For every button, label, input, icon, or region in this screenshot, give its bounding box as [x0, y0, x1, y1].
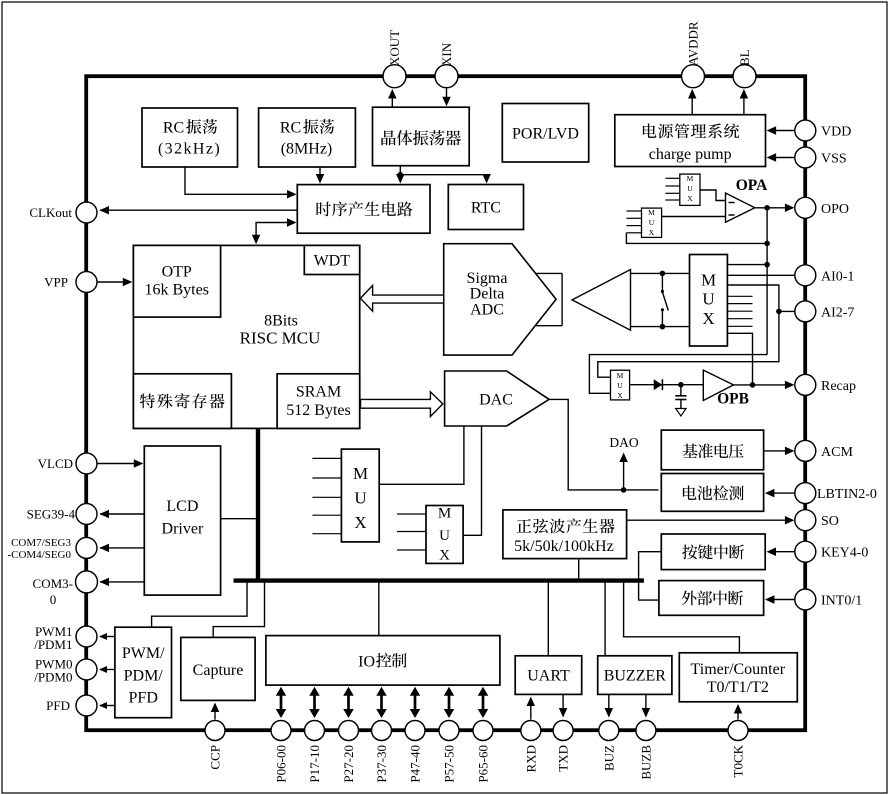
svg-text:DAC: DAC — [479, 392, 513, 409]
svg-text:VLCD: VLCD — [38, 456, 73, 471]
svg-text:KEY4-0: KEY4-0 — [821, 546, 868, 561]
svg-text:charge pump: charge pump — [649, 146, 732, 163]
svg-text:PFD: PFD — [129, 690, 158, 707]
svg-text:U: U — [687, 184, 693, 193]
svg-text:SRAM: SRAM — [296, 384, 341, 401]
svg-text:WDT: WDT — [314, 253, 351, 270]
svg-text:BUZZER: BUZZER — [604, 668, 667, 685]
svg-text:BUZ: BUZ — [601, 745, 616, 771]
svg-text:U: U — [617, 381, 623, 390]
svg-text:P65-60: P65-60 — [476, 745, 491, 783]
svg-text:0: 0 — [50, 592, 57, 607]
svg-text:LCD: LCD — [166, 498, 198, 515]
svg-text:CLKout: CLKout — [29, 205, 72, 220]
svg-text:OTP: OTP — [162, 264, 192, 281]
svg-text:M: M — [701, 271, 716, 290]
svg-text:PWM/: PWM/ — [122, 645, 165, 662]
svg-text:UART: UART — [527, 668, 570, 685]
svg-text:ACM: ACM — [821, 445, 853, 460]
svg-text:OPO: OPO — [821, 202, 849, 217]
svg-text:COM7/SEG3: COM7/SEG3 — [11, 537, 71, 549]
svg-text:LBTIN2-0: LBTIN2-0 — [817, 487, 877, 502]
svg-text:X: X — [617, 391, 623, 400]
svg-text:512 Bytes: 512 Bytes — [286, 402, 350, 419]
svg-text:COM3-: COM3- — [33, 576, 73, 591]
svg-text:VPP: VPP — [44, 275, 68, 290]
svg-text:U: U — [702, 290, 714, 309]
svg-text:T0/T1/T2: T0/T1/T2 — [707, 679, 769, 696]
svg-text:CCP: CCP — [208, 745, 223, 770]
svg-text:M: M — [648, 208, 655, 217]
svg-text:M: M — [353, 464, 368, 483]
svg-text:U: U — [649, 218, 655, 227]
svg-text:RC: RC — [280, 120, 301, 137]
svg-text:5k/50k/100kHz: 5k/50k/100kHz — [514, 538, 614, 555]
svg-text:X: X — [439, 548, 450, 564]
svg-text:PFD: PFD — [46, 698, 70, 713]
svg-text:ADC: ADC — [470, 302, 504, 319]
svg-text:(32kHz): (32kHz) — [158, 141, 221, 158]
svg-text:AI0-1: AI0-1 — [821, 269, 854, 284]
svg-text:BL: BL — [737, 49, 752, 66]
svg-text:P27-20: P27-20 — [341, 745, 356, 783]
svg-text:SO: SO — [821, 514, 839, 529]
svg-text:PDM/: PDM/ — [124, 668, 164, 685]
svg-text:/PDM1: /PDM1 — [34, 637, 72, 652]
svg-text:AVDDR: AVDDR — [686, 21, 701, 66]
svg-text:IO: IO — [358, 653, 375, 670]
svg-text:VDD: VDD — [821, 125, 851, 140]
svg-text:INT0/1: INT0/1 — [821, 594, 862, 609]
svg-text:SEG39-4: SEG39-4 — [27, 507, 76, 522]
svg-text:Driver: Driver — [162, 521, 204, 538]
svg-text:P57-50: P57-50 — [442, 745, 457, 783]
svg-text:M: M — [617, 371, 624, 380]
svg-text:POR/LVD: POR/LVD — [512, 125, 579, 142]
svg-text:16k Bytes: 16k Bytes — [144, 282, 208, 299]
svg-text:M: M — [687, 174, 694, 183]
svg-text:BUZB: BUZB — [638, 745, 653, 780]
svg-text:X: X — [649, 228, 655, 237]
svg-text:AI2-7: AI2-7 — [821, 305, 854, 320]
svg-text:X: X — [702, 309, 714, 328]
svg-text:P17-10: P17-10 — [307, 745, 322, 783]
svg-text:DAO: DAO — [609, 435, 638, 450]
svg-text:RISC MCU: RISC MCU — [240, 329, 321, 348]
svg-text:X: X — [354, 513, 366, 532]
svg-text:Capture: Capture — [193, 662, 244, 679]
svg-text:8Bits: 8Bits — [264, 313, 298, 330]
svg-text:P47-40: P47-40 — [408, 745, 423, 783]
svg-text:Timer/Counter: Timer/Counter — [691, 661, 786, 678]
svg-text:(8MHz): (8MHz) — [281, 141, 333, 158]
svg-text:RTC: RTC — [471, 200, 501, 217]
svg-text:P06-00: P06-00 — [274, 745, 289, 783]
svg-text:RC: RC — [163, 120, 184, 137]
svg-text:OPA: OPA — [736, 177, 768, 194]
svg-text:RXD: RXD — [523, 745, 538, 772]
svg-text:Delta: Delta — [470, 286, 505, 303]
svg-text:/PDM0: /PDM0 — [34, 670, 72, 685]
svg-text:-COM4/SEG0: -COM4/SEG0 — [7, 549, 71, 561]
svg-text:P37-30: P37-30 — [374, 745, 389, 783]
svg-text:TXD: TXD — [556, 745, 571, 772]
svg-text:Recap: Recap — [821, 379, 856, 394]
svg-text:M: M — [438, 506, 451, 522]
svg-text:XIN: XIN — [439, 42, 454, 66]
svg-text:OPB: OPB — [717, 391, 749, 408]
svg-text:XOUT: XOUT — [387, 30, 402, 66]
svg-text:U: U — [439, 528, 450, 544]
svg-text:Sigma: Sigma — [467, 270, 508, 287]
svg-text:VSS: VSS — [821, 152, 847, 167]
svg-text:T0CK: T0CK — [731, 744, 746, 777]
svg-text:X: X — [687, 194, 693, 203]
svg-text:U: U — [354, 489, 366, 508]
